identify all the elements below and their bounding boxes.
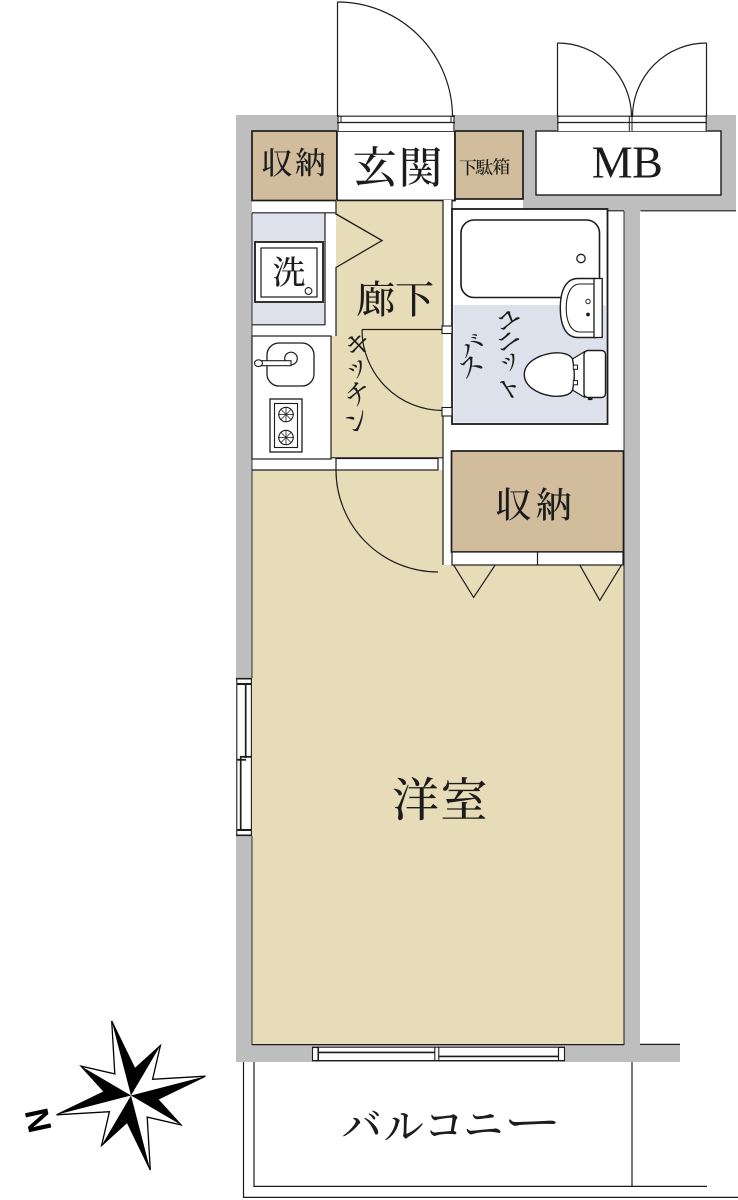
svg-text:MB: MB: [592, 137, 663, 188]
